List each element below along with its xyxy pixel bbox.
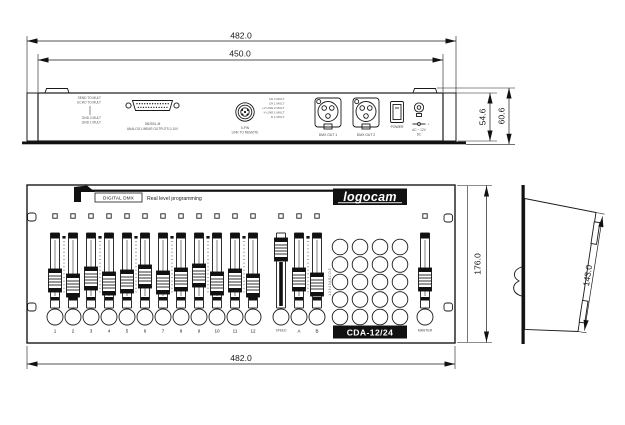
arrowhead-icon: [506, 134, 511, 145]
channel-number: 11: [233, 329, 238, 334]
speed-fader: [275, 233, 288, 308]
fader-cap[interactable]: [293, 268, 306, 291]
channel-number: 10: [214, 329, 220, 334]
fader-cap[interactable]: [193, 264, 206, 287]
xlr-connector-2: DMX OUT 2: [353, 98, 379, 137]
bank-b-led: [315, 214, 319, 218]
fader-cap[interactable]: [67, 274, 80, 297]
dim-text-rear-overall-height: 60.6: [497, 107, 507, 124]
speed-button[interactable]: [273, 309, 289, 325]
pin-label: ECHO TO MULT: [77, 101, 101, 105]
master-button[interactable]: [417, 309, 433, 325]
model-label: CDA-12/24: [347, 327, 394, 337]
bank-a-label: A: [297, 329, 301, 334]
din-pin: +V LINE 2 MULT: [262, 106, 285, 110]
fader-cap[interactable]: [49, 269, 62, 292]
fader-cap[interactable]: [419, 268, 432, 291]
program-button[interactable]: [352, 239, 368, 255]
arrowhead-icon: [598, 216, 605, 227]
front-header: DIGITAL DMX Real level programming logoc…: [74, 186, 407, 206]
din-label-1: 5-PIN: [241, 126, 250, 130]
program-button[interactable]: [372, 257, 388, 273]
side-view: 143.0: [514, 185, 605, 344]
dimension-rear-overall-height: 60.6: [437, 88, 515, 144]
arrowhead-icon: [506, 88, 511, 99]
channel-number: 9: [198, 329, 201, 334]
dc-label-2: DC: [417, 133, 422, 137]
program-button[interactable]: [332, 309, 348, 325]
program-button[interactable]: [372, 309, 388, 325]
arrowhead-icon: [487, 131, 492, 142]
xlr1-label: DMX OUT 1: [319, 133, 338, 137]
program-button[interactable]: [392, 274, 408, 290]
fader-cap[interactable]: [229, 269, 242, 292]
channel-led: [179, 214, 183, 218]
bank-a-led: [297, 214, 301, 218]
channel-number: 12: [250, 329, 256, 334]
din-connector: 5-PIN LINK TO REMOTE CH 2 MULT CH 1 MULT…: [232, 97, 285, 135]
channel-button-10[interactable]: [209, 309, 225, 325]
db25-connector: DB25SL-M ANALOG LINEAR OUTPUTS 0-10V: [126, 101, 179, 132]
channel-led: [71, 214, 75, 218]
pin-label: SEND TO MULT: [78, 96, 101, 100]
dim-text-body-width: 450.0: [229, 49, 251, 59]
din-pin: CH 2 MULT: [269, 97, 285, 101]
bank-a-button[interactable]: [291, 309, 307, 325]
master-led: [423, 214, 427, 218]
master-fader: [419, 233, 432, 308]
channel-led: [107, 214, 111, 218]
arrowhead-icon: [484, 186, 489, 197]
fader-cap[interactable]: [275, 238, 288, 261]
dim-text-front-width: 482.0: [230, 353, 252, 363]
master-label: MASTER: [418, 329, 433, 333]
top-tab-right: [413, 89, 437, 94]
mounting-hole: [444, 214, 453, 222]
speed-led: [279, 214, 283, 218]
db25-pins: [136, 103, 169, 108]
channel-led: [125, 214, 129, 218]
channel-led: [233, 214, 237, 218]
base-line: [22, 142, 466, 145]
dim-text-overall-width-top: 482.0: [230, 31, 252, 41]
channel-button-12[interactable]: [245, 309, 261, 325]
channel-number: 5: [126, 329, 129, 334]
lp-logo-icon: [74, 186, 95, 203]
dimension-front-width: 482.0: [27, 346, 455, 369]
mounting-clip: [514, 267, 522, 296]
channel-led: [53, 214, 57, 218]
program-button[interactable]: [392, 309, 408, 325]
channel-button-4[interactable]: [101, 309, 117, 325]
arrowhead-icon: [446, 38, 457, 43]
channel-number: 1: [54, 329, 57, 334]
dimension-rear-body-height: 54.6: [443, 93, 497, 141]
channel-button-1[interactable]: [47, 309, 63, 325]
model-badge: CDA-12/24: [333, 326, 407, 339]
program-button[interactable]: [332, 274, 348, 290]
fader-cap[interactable]: [157, 271, 170, 294]
technical-drawing-page: 482.0 450.0 SEND TO MULT ECHO TO MULT GN…: [0, 0, 625, 425]
led-row: [53, 214, 427, 218]
arrowhead-icon: [487, 93, 492, 104]
din-pin: D 1 MULT: [271, 115, 285, 119]
header-rule: [88, 190, 333, 192]
fader-cap[interactable]: [247, 274, 260, 297]
logocam-cda-12-24-dimensional-drawing: 482.0 450.0 SEND TO MULT ECHO TO MULT GN…: [0, 0, 625, 425]
channel-button-3[interactable]: [83, 309, 99, 325]
program-button-grid: 1 2 3 4 5 A B C D E CDA-12/24: [328, 239, 408, 338]
channel-number: 6: [144, 329, 147, 334]
bank-b-button[interactable]: [309, 309, 325, 325]
arrowhead-icon: [27, 361, 38, 366]
din-pin: CH 1 MULT: [269, 102, 285, 106]
program-button[interactable]: [352, 309, 368, 325]
channel-led: [251, 214, 255, 218]
pin-label: GND 2 MULT: [82, 116, 101, 120]
arrowhead-icon: [445, 361, 456, 366]
din-pin: -V LINE 1 MULT: [263, 111, 285, 115]
power-label: POWER: [391, 125, 404, 129]
program-button[interactable]: [352, 274, 368, 290]
program-button[interactable]: [332, 292, 348, 308]
program-button[interactable]: [352, 292, 368, 308]
channel-number: 7: [162, 329, 165, 334]
program-button[interactable]: [372, 274, 388, 290]
program-button[interactable]: [392, 292, 408, 308]
crossfade-faders: [293, 233, 324, 308]
din-pinout-list: CH 2 MULT CH 1 MULT +V LINE 2 MULT -V LI…: [262, 97, 285, 119]
fader-cap[interactable]: [139, 265, 152, 288]
channel-number: 2: [72, 329, 75, 334]
front-panel-view: DIGITAL DMX Real level programming logoc…: [27, 185, 492, 369]
channel-button-11[interactable]: [227, 309, 243, 325]
channel-button-9[interactable]: [191, 309, 207, 325]
channel-button-2[interactable]: [65, 309, 81, 325]
rear-panel-view: 482.0 450.0 SEND TO MULT ECHO TO MULT GN…: [22, 31, 515, 145]
channel-number: 3: [90, 329, 93, 334]
pin-label: GND 1 MULT: [82, 121, 101, 125]
program-button[interactable]: [332, 239, 348, 255]
channel-button-6[interactable]: [137, 309, 153, 325]
program-side-label: 1 2 3 4 5 A B C D E: [328, 268, 332, 295]
mounting-hole: [444, 303, 453, 311]
logocam-wordmark: logocam: [343, 190, 397, 204]
channel-button-7[interactable]: [155, 309, 171, 325]
top-tab-left: [45, 89, 69, 94]
mounting-hole: [28, 213, 37, 221]
program-button[interactable]: [332, 257, 348, 273]
db25-label-2: ANALOG LINEAR OUTPUTS 0-10V: [127, 127, 179, 131]
program-button[interactable]: [352, 257, 368, 273]
program-button[interactable]: [372, 239, 388, 255]
channel-number: 4: [108, 329, 111, 334]
channel-led: [161, 214, 165, 218]
channel-led: [143, 214, 147, 218]
channel-button-5[interactable]: [119, 309, 135, 325]
dimension-front-height: 176.0: [457, 186, 492, 343]
channel-faders: [49, 233, 260, 308]
program-button[interactable]: [392, 257, 408, 273]
fader-cap[interactable]: [103, 272, 116, 295]
fader-cap[interactable]: [211, 272, 224, 295]
channel-button-8[interactable]: [173, 309, 189, 325]
side-faceplate-edge: [522, 185, 525, 344]
dc-polarity: +: [428, 123, 430, 127]
din-label-2: LINK TO REMOTE: [232, 131, 259, 135]
db25-label-1: DB25SL-M: [145, 122, 161, 126]
fader-cap[interactable]: [121, 270, 134, 293]
logocam-logo: logocam: [333, 189, 407, 206]
xlr-connector-1: DMX OUT 1: [315, 98, 341, 137]
digital-dmx-label: DIGITAL DMX: [103, 196, 134, 201]
tagline: Real level programming: [147, 196, 202, 202]
polarity-icon: [413, 123, 426, 126]
program-button[interactable]: [392, 239, 408, 255]
arrowhead-icon: [484, 332, 489, 343]
xlr2-label: DMX OUT 2: [357, 133, 376, 137]
dc-power-inlet: + AC ~ 12V DC: [412, 103, 429, 137]
dc-label-1: AC ~ 12V: [412, 128, 427, 132]
bank-b-label: B: [315, 329, 318, 334]
dimension-body-width: 450.0: [38, 49, 443, 93]
channel-led: [89, 214, 93, 218]
arrowhead-icon: [38, 57, 49, 62]
arrowhead-icon: [433, 57, 444, 62]
dim-text-front-height: 176.0: [473, 253, 483, 275]
mounting-hole: [28, 303, 37, 311]
channel-led: [197, 214, 201, 218]
power-switch: POWER: [391, 102, 404, 130]
rear-pin-labels-left: SEND TO MULT ECHO TO MULT GND 2 MULT GND…: [77, 96, 101, 125]
fader-cap[interactable]: [175, 268, 188, 291]
speed-label: SPEED: [276, 329, 288, 333]
channel-number: 8: [180, 329, 183, 334]
fader-cap[interactable]: [311, 273, 324, 296]
dim-text-rear-body-height: 54.6: [478, 108, 488, 125]
fader-cap[interactable]: [85, 267, 98, 290]
channel-led: [215, 214, 219, 218]
arrowhead-icon: [27, 38, 38, 43]
program-button[interactable]: [372, 292, 388, 308]
